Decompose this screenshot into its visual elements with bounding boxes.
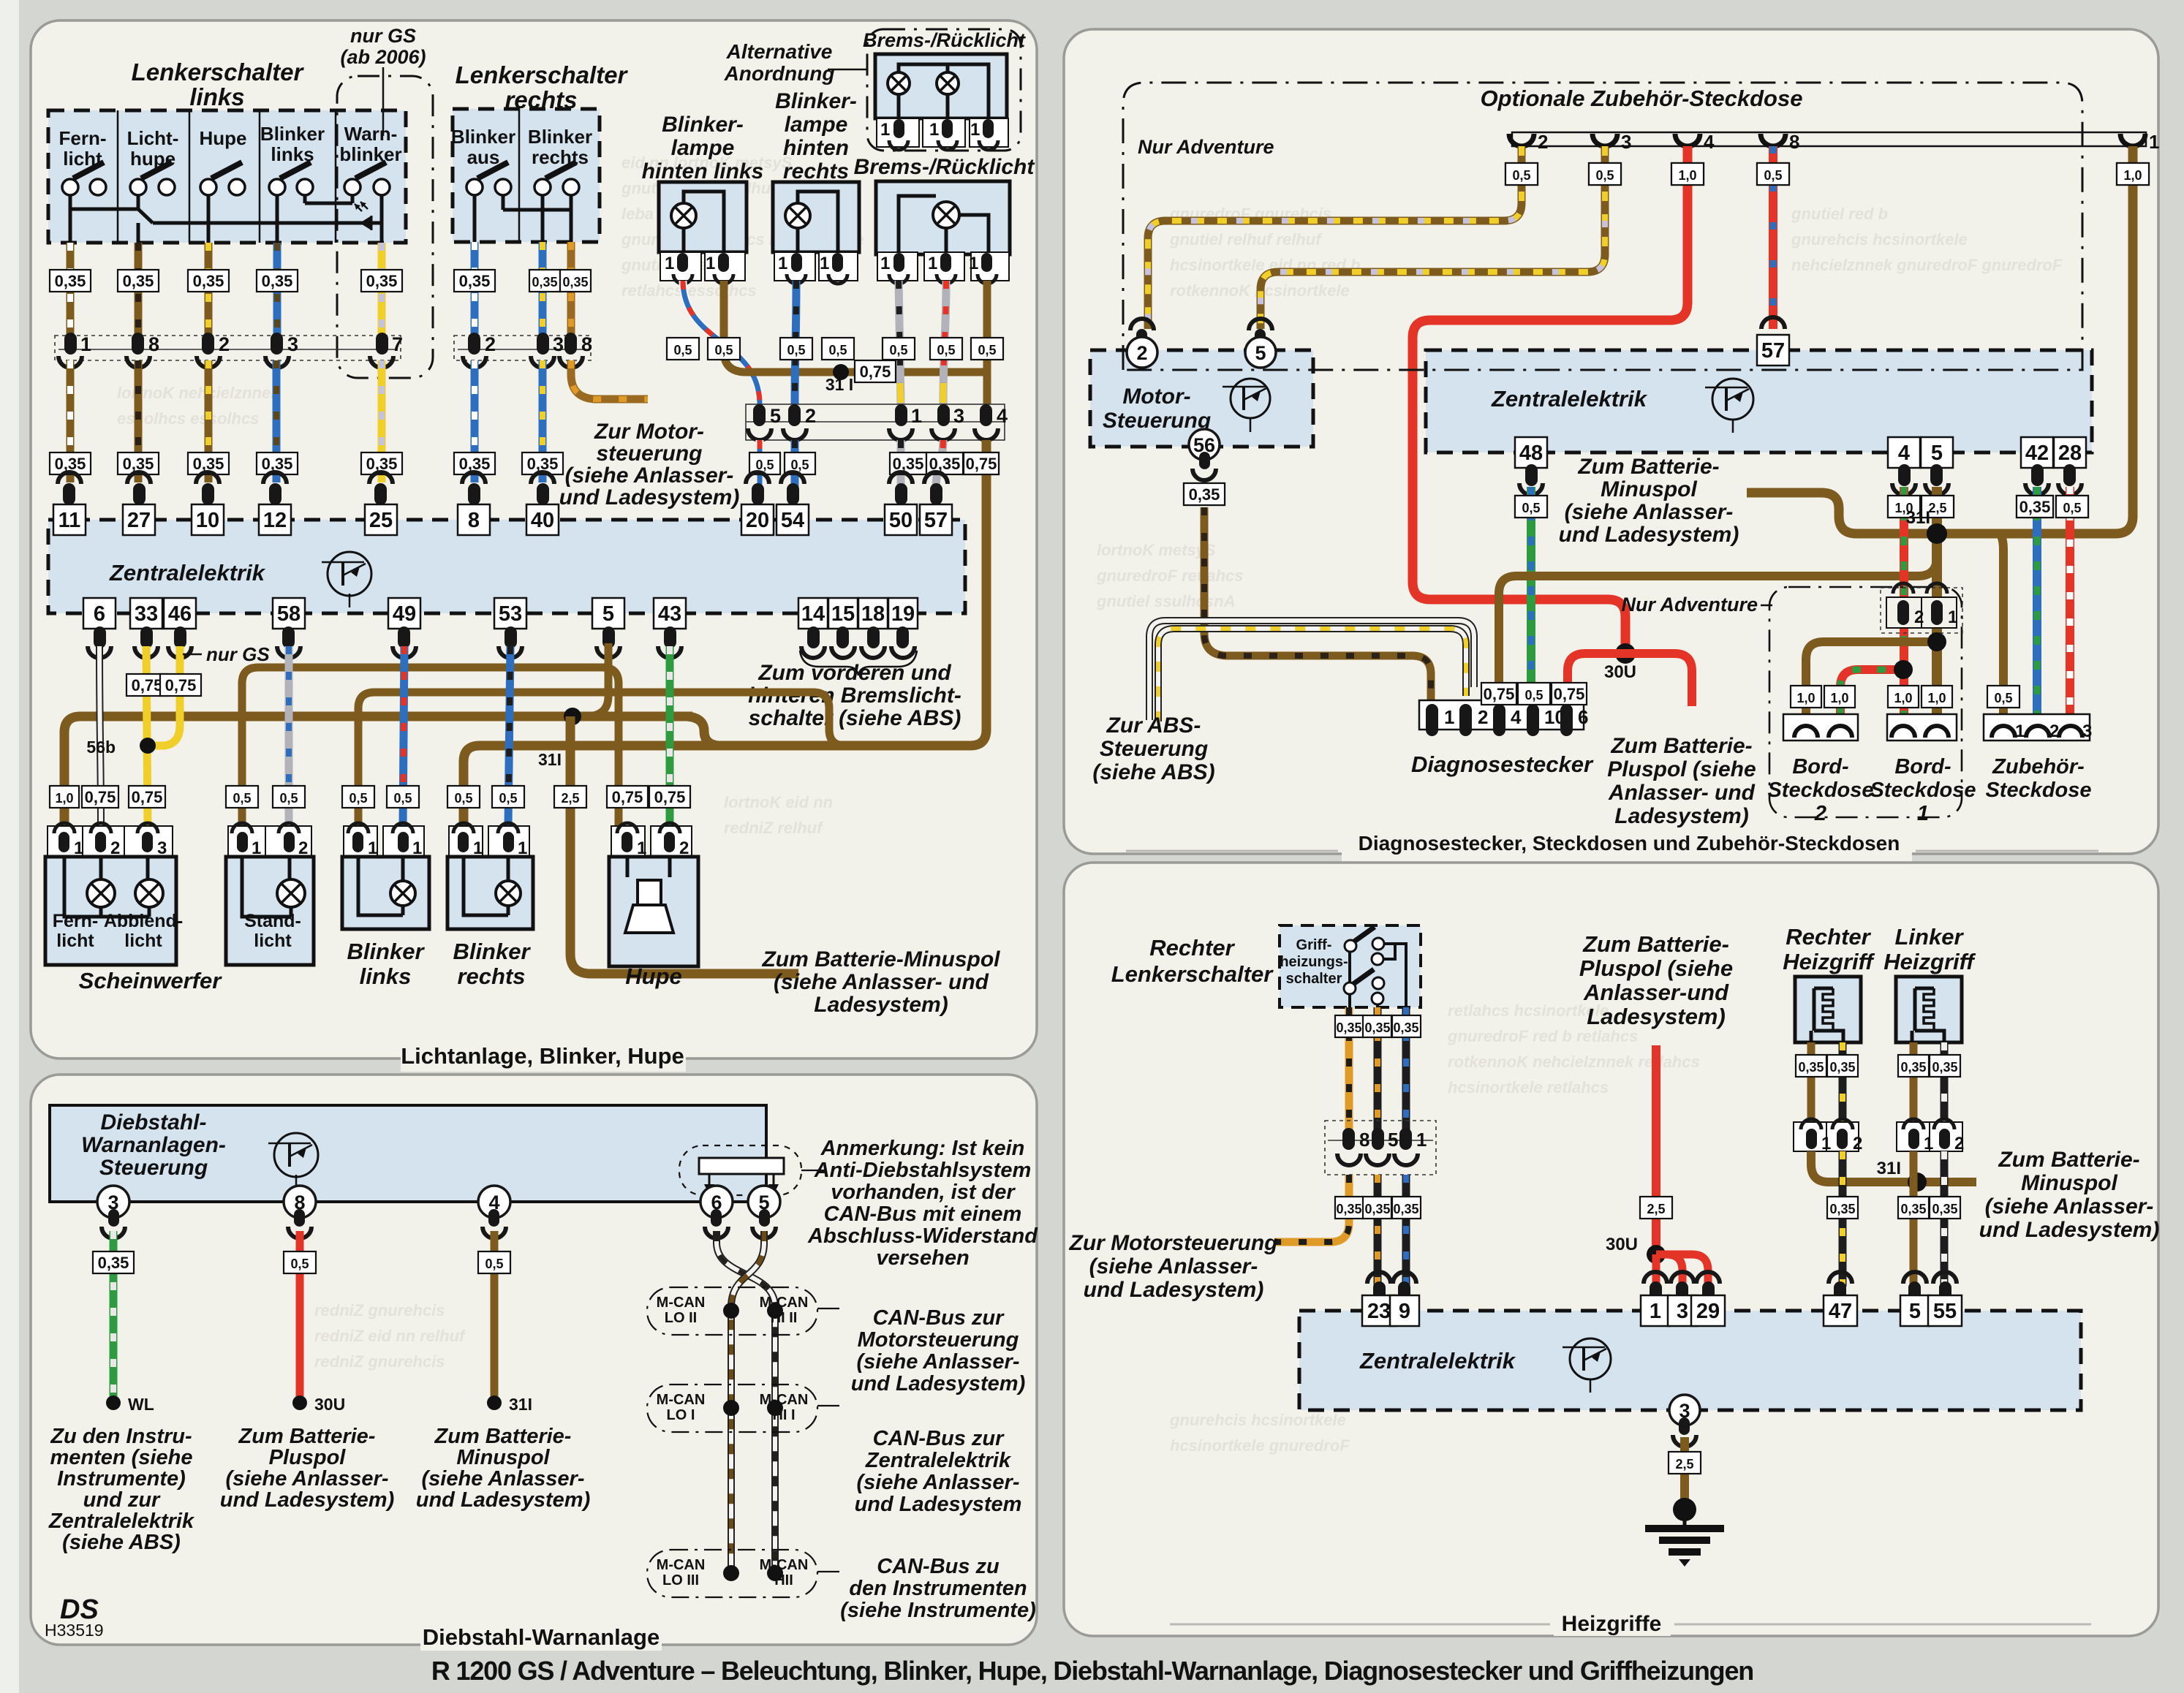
svg-text:Heizgriff: Heizgriff: [1783, 949, 1875, 974]
svg-text:53: 53: [499, 602, 522, 626]
svg-text:3: 3: [1677, 1300, 1688, 1323]
svg-text:Anlasser-und: Anlasser-und: [1583, 980, 1729, 1005]
svg-text:(siehe Anlasser-: (siehe Anlasser-: [1985, 1194, 2154, 1219]
svg-text:0,5: 0,5: [889, 343, 907, 357]
svg-text:0,5: 0,5: [1994, 691, 2012, 705]
svg-text:1: 1: [2015, 721, 2025, 741]
svg-text:0,35: 0,35: [1393, 1020, 1418, 1035]
svg-text:gnurehcis hcsinortkele: gnurehcis hcsinortkele: [1791, 230, 1968, 249]
svg-text:Zum Batterie-: Zum Batterie-: [1577, 455, 1719, 479]
svg-text:50: 50: [889, 509, 912, 532]
svg-text:1,0: 1,0: [55, 791, 73, 806]
svg-text:1,0: 1,0: [2123, 168, 2142, 183]
svg-text:R 1200 GS / Adventure – Beleuc: R 1200 GS / Adventure – Beleuchtung, Bli…: [431, 1656, 1753, 1686]
svg-text:0,35: 0,35: [532, 275, 557, 289]
svg-text:lampe: lampe: [671, 136, 735, 160]
svg-text:Ladesystem): Ladesystem): [1587, 1004, 1726, 1029]
svg-text:und Ladesystem: und Ladesystem: [855, 1493, 1022, 1516]
svg-text:LO I: LO I: [667, 1407, 695, 1423]
svg-text:0,5: 0,5: [2063, 501, 2081, 515]
svg-text:lampe: lampe: [785, 113, 848, 137]
svg-text:0,75: 0,75: [612, 788, 643, 806]
svg-text:Fern-: Fern-: [59, 127, 107, 149]
svg-text:31I: 31I: [538, 750, 562, 769]
svg-text:und Ladesystem): und Ladesystem): [220, 1488, 395, 1512]
svg-text:Zentralelektrik: Zentralelektrik: [109, 560, 266, 586]
svg-text:Optionale Zubehör-Steckdose: Optionale Zubehör-Steckdose: [1481, 86, 1803, 111]
svg-text:0,5: 0,5: [279, 791, 298, 806]
svg-text:Zum Batterie-Minuspol: Zum Batterie-Minuspol: [761, 947, 1000, 972]
svg-text:0,5: 0,5: [233, 791, 251, 806]
svg-text:2,5: 2,5: [1928, 501, 1946, 515]
svg-text:42: 42: [2025, 442, 2049, 465]
svg-text:(siehe Anlasser-: (siehe Anlasser-: [1565, 500, 1734, 524]
svg-text:12: 12: [263, 509, 287, 532]
svg-text:Heizgriffe: Heizgriffe: [1562, 1612, 1662, 1636]
svg-text:H33519: H33519: [45, 1621, 104, 1640]
svg-text:lortnoK eid nn: lortnoK eid nn: [724, 793, 833, 811]
svg-text:Anlasser- und: Anlasser- und: [1608, 781, 1756, 805]
svg-text:Motorsteuerung: Motorsteuerung: [858, 1328, 1019, 1352]
svg-text:Ladesystem): Ladesystem): [1614, 804, 1748, 828]
svg-text:30U: 30U: [1606, 1235, 1638, 1254]
svg-text:0,75: 0,75: [1484, 685, 1515, 703]
svg-text:menten (siehe: menten (siehe: [50, 1446, 193, 1469]
svg-text:Blinker: Blinker: [451, 126, 515, 148]
svg-text:5: 5: [1909, 1300, 1921, 1323]
svg-text:hcsinortkele retlahcs: hcsinortkele retlahcs: [1448, 1078, 1609, 1097]
svg-text:1: 1: [969, 254, 978, 273]
svg-text:9: 9: [1399, 1300, 1410, 1323]
svg-text:0,5: 0,5: [787, 343, 805, 357]
svg-text:0,35: 0,35: [1189, 485, 1220, 504]
svg-text:0,75: 0,75: [165, 676, 197, 694]
svg-text:Motor-: Motor-: [1122, 385, 1190, 409]
svg-text:M-CAN: M-CAN: [657, 1392, 706, 1408]
svg-text:2,5: 2,5: [1647, 1202, 1665, 1216]
svg-text:schalter: schalter: [1286, 971, 1342, 987]
svg-text:Instrumente): Instrumente): [57, 1467, 186, 1491]
svg-text:0,35: 0,35: [2019, 498, 2051, 516]
svg-text:WL: WL: [128, 1395, 154, 1414]
svg-text:Brems-/Rücklicht: Brems-/Rücklicht: [854, 155, 1036, 179]
svg-text:vorhanden, ist der: vorhanden, ist der: [831, 1181, 1016, 1204]
svg-text:14: 14: [801, 602, 825, 626]
svg-text:0,5: 0,5: [1595, 168, 1614, 183]
svg-text:M-CAN: M-CAN: [657, 1557, 706, 1573]
svg-text:0,5: 0,5: [1512, 168, 1530, 183]
svg-text:licht: licht: [254, 931, 292, 951]
svg-text:und Ladesystem): und Ladesystem): [1084, 1278, 1264, 1302]
svg-text:rotkennoK nehcielznnek retlahc: rotkennoK nehcielznnek retlahcs: [1448, 1053, 1700, 1071]
svg-text:Scheinwerfer: Scheinwerfer: [79, 968, 223, 993]
svg-text:Bord-: Bord-: [1792, 755, 1848, 779]
svg-text:Heizgriff: Heizgriff: [1883, 949, 1976, 974]
svg-text:Warnanlagen-: Warnanlagen-: [81, 1133, 226, 1157]
svg-text:2: 2: [1814, 802, 1826, 825]
svg-text:0,35: 0,35: [1900, 1060, 1926, 1075]
svg-text:11: 11: [58, 509, 81, 532]
svg-text:40: 40: [531, 509, 554, 532]
svg-text:(siehe Anlasser- und: (siehe Anlasser- und: [774, 970, 989, 994]
svg-text:Alternative: Alternative: [726, 40, 833, 63]
svg-text:CAN-Bus mit einem: CAN-Bus mit einem: [824, 1202, 1022, 1226]
svg-text:Steckdose: Steckdose: [1985, 779, 2091, 802]
svg-text:licht: licht: [124, 931, 162, 951]
svg-text:Nur Adventure: Nur Adventure: [1138, 136, 1274, 158]
svg-text:23: 23: [1367, 1300, 1391, 1323]
svg-text:rechts: rechts: [505, 86, 577, 113]
svg-text:2: 2: [1914, 607, 1924, 627]
svg-text:M-CAN: M-CAN: [760, 1295, 809, 1311]
svg-text:Zu den Instru-: Zu den Instru-: [50, 1425, 192, 1448]
svg-text:Zubehör-: Zubehör-: [1992, 755, 2085, 779]
svg-text:M-CAN: M-CAN: [760, 1557, 809, 1573]
svg-text:1,0: 1,0: [1796, 691, 1815, 705]
svg-text:Zentralelektrik: Zentralelektrik: [48, 1510, 195, 1533]
svg-text:20: 20: [746, 509, 769, 532]
svg-text:Minuspol: Minuspol: [1601, 477, 1697, 501]
svg-text:hcsinortkele gnuredroF: hcsinortkele gnuredroF: [1170, 1436, 1350, 1455]
svg-text:Zentralelektrik: Zentralelektrik: [865, 1449, 1012, 1472]
svg-text:(siehe Anlasser-: (siehe Anlasser-: [565, 463, 734, 488]
svg-text:1: 1: [911, 405, 922, 427]
svg-text:0,75: 0,75: [860, 363, 891, 381]
svg-text:Brems-/Rücklicht: Brems-/Rücklicht: [863, 29, 1026, 51]
svg-text:Blinker-: Blinker-: [775, 89, 857, 113]
svg-text:0,35: 0,35: [1932, 1202, 1957, 1216]
svg-text:(siehe Instrumente): (siehe Instrumente): [840, 1599, 1036, 1622]
svg-text:gnuredroF retlahcs: gnuredroF retlahcs: [1096, 567, 1243, 585]
svg-text:0,35: 0,35: [1932, 1060, 1957, 1075]
svg-text:48: 48: [1519, 442, 1543, 465]
svg-text:29: 29: [1696, 1300, 1720, 1323]
svg-text:blinker: blinker: [339, 143, 401, 165]
svg-text:1: 1: [1948, 607, 1957, 627]
svg-text:27: 27: [127, 509, 151, 532]
svg-text:gnurehcis hcsinortkele: gnurehcis hcsinortkele: [1169, 1411, 1346, 1429]
svg-text:0,5: 0,5: [673, 343, 692, 357]
svg-text:und Ladesystem): und Ladesystem): [416, 1488, 591, 1512]
svg-text:0,35: 0,35: [1393, 1202, 1418, 1216]
svg-text:redniZ eid nn relhuf: redniZ eid nn relhuf: [314, 1327, 466, 1345]
svg-text:1: 1: [665, 254, 674, 273]
svg-text:8: 8: [1359, 1129, 1369, 1151]
svg-text:Diebstahl-: Diebstahl-: [100, 1110, 206, 1135]
svg-text:schalter (siehe ABS): schalter (siehe ABS): [749, 706, 961, 730]
svg-text:(siehe ABS): (siehe ABS): [1092, 760, 1214, 784]
svg-text:Zur Motor-: Zur Motor-: [594, 420, 704, 444]
svg-text:Zum vorderen und: Zum vorderen und: [757, 661, 951, 685]
svg-text:57: 57: [924, 509, 948, 532]
svg-text:6: 6: [94, 602, 105, 626]
svg-text:0,35: 0,35: [1364, 1202, 1390, 1216]
svg-text:Abblend-: Abblend-: [104, 911, 183, 931]
svg-text:7: 7: [392, 333, 403, 355]
svg-text:redniZ relhuf: redniZ relhuf: [724, 819, 824, 837]
svg-text:1: 1: [80, 333, 91, 355]
svg-text:M-CAN: M-CAN: [657, 1295, 706, 1311]
svg-text:5: 5: [1255, 342, 1266, 364]
svg-text:2: 2: [805, 405, 816, 427]
svg-text:10: 10: [196, 509, 219, 532]
svg-text:rechts: rechts: [532, 146, 589, 168]
svg-text:0,35: 0,35: [562, 275, 588, 289]
svg-text:0,75: 0,75: [132, 676, 163, 694]
svg-text:0,75: 0,75: [1554, 685, 1585, 703]
svg-text:1: 1: [1650, 1300, 1661, 1323]
svg-text:2: 2: [219, 333, 230, 355]
svg-text:31I: 31I: [1877, 1159, 1901, 1178]
svg-text:gnutiel relhuf relhuf: gnutiel relhuf relhuf: [1169, 230, 1323, 249]
svg-text:Pluspol (siehe: Pluspol (siehe: [1607, 757, 1756, 781]
svg-text:1: 1: [1444, 706, 1454, 728]
svg-text:Blinker: Blinker: [260, 123, 325, 145]
svg-text:Ladesystem): Ladesystem): [814, 993, 948, 1017]
svg-text:0,5: 0,5: [1524, 688, 1543, 702]
svg-text:Hupe: Hupe: [625, 963, 682, 989]
svg-text:0,75: 0,75: [966, 455, 997, 473]
svg-text:8: 8: [468, 509, 480, 532]
svg-text:0,5: 0,5: [978, 343, 996, 357]
svg-text:Minuspol: Minuspol: [2021, 1171, 2117, 1195]
svg-text:58: 58: [277, 602, 301, 626]
svg-text:0,35: 0,35: [1829, 1202, 1855, 1216]
svg-text:1,0: 1,0: [1894, 691, 1912, 705]
svg-text:0,35: 0,35: [262, 272, 293, 290]
svg-text:1: 1: [706, 254, 715, 273]
svg-text:heizungs-: heizungs-: [1280, 954, 1348, 970]
svg-text:4: 4: [1898, 442, 1910, 465]
svg-text:2: 2: [2049, 721, 2059, 741]
svg-text:und Ladesystem): und Ladesystem): [851, 1372, 1026, 1395]
svg-text:rechts: rechts: [457, 963, 525, 989]
svg-text:LO III: LO III: [662, 1572, 699, 1588]
svg-text:0,5: 0,5: [454, 791, 472, 806]
svg-text:nehcielznnek gnuredroF gnuredr: nehcielznnek gnuredroF gnuredroF: [1791, 256, 2063, 274]
svg-text:Zentralelektrik: Zentralelektrik: [1359, 1348, 1516, 1374]
svg-text:54: 54: [781, 509, 804, 532]
svg-text:2: 2: [1538, 131, 1548, 153]
svg-text:(siehe Anlasser-: (siehe Anlasser-: [857, 1350, 1020, 1374]
svg-text:hinten links: hinten links: [642, 159, 764, 183]
svg-text:1: 1: [2149, 131, 2159, 153]
svg-text:8: 8: [148, 333, 159, 355]
svg-text:Blinker: Blinker: [528, 126, 592, 148]
svg-text:0,35: 0,35: [123, 272, 154, 290]
svg-text:19: 19: [891, 602, 915, 626]
svg-text:nur GS: nur GS: [350, 25, 416, 47]
svg-text:0,5: 0,5: [1522, 501, 1540, 515]
svg-text:30U: 30U: [1604, 662, 1636, 682]
svg-text:Abschluss-Widerstand: Abschluss-Widerstand: [807, 1224, 1038, 1248]
svg-text:25: 25: [369, 509, 393, 532]
svg-text:Blinker-: Blinker-: [662, 113, 744, 137]
svg-text:Zum Batterie-: Zum Batterie-: [1610, 734, 1752, 758]
svg-text:8: 8: [581, 333, 592, 355]
svg-text:rechts: rechts: [783, 159, 849, 183]
svg-text:hinten: hinten: [783, 136, 849, 160]
svg-text:gnutiel red b: gnutiel red b: [1791, 205, 1888, 223]
svg-text:redniZ gnurehcis: redniZ gnurehcis: [314, 1301, 445, 1319]
svg-text:2: 2: [1478, 706, 1488, 728]
svg-text:47: 47: [1829, 1300, 1852, 1323]
svg-text:gnuredroF red b retlahcs: gnuredroF red b retlahcs: [1447, 1027, 1638, 1045]
svg-text:1: 1: [1821, 1134, 1831, 1154]
svg-text:links: links: [189, 83, 244, 110]
svg-text:2: 2: [1136, 342, 1147, 364]
svg-text:und Ladesystem): und Ladesystem): [1979, 1218, 2160, 1242]
svg-text:55: 55: [1933, 1300, 1957, 1323]
svg-text:1: 1: [1416, 1129, 1427, 1151]
svg-text:4: 4: [1511, 706, 1522, 728]
svg-text:5: 5: [770, 405, 781, 427]
svg-text:steuerung: steuerung: [596, 442, 702, 466]
svg-text:28: 28: [2058, 442, 2082, 465]
svg-text:0,75: 0,75: [654, 788, 686, 806]
svg-text:2: 2: [1853, 1134, 1862, 1154]
svg-text:Hupe: Hupe: [200, 127, 247, 149]
svg-text:0,35: 0,35: [1336, 1020, 1361, 1035]
svg-text:Fern-: Fern-: [53, 911, 99, 931]
svg-text:lortnoK metsyS: lortnoK metsyS: [1097, 541, 1216, 559]
svg-text:0,75: 0,75: [132, 788, 163, 806]
svg-text:CAN-Bus zur: CAN-Bus zur: [873, 1306, 1005, 1330]
svg-text:0,35: 0,35: [459, 272, 491, 290]
svg-text:gnutiel ssulhcsnA: gnutiel ssulhcsnA: [1096, 592, 1235, 610]
svg-text:15: 15: [831, 602, 855, 626]
svg-text:2: 2: [485, 333, 496, 355]
svg-text:CAN-Bus zur: CAN-Bus zur: [873, 1427, 1005, 1450]
svg-text:Lenkerschalter: Lenkerschalter: [1111, 961, 1274, 987]
svg-text:Steckdose: Steckdose: [1767, 779, 1873, 802]
svg-text:Rechter: Rechter: [1149, 935, 1235, 961]
svg-text:nur GS: nur GS: [206, 643, 270, 665]
svg-text:Rechter: Rechter: [1786, 924, 1871, 950]
svg-text:0,35: 0,35: [366, 272, 398, 290]
svg-text:1: 1: [820, 254, 829, 273]
svg-text:Lichtanlage, Blinker, Hupe: Lichtanlage, Blinker, Hupe: [401, 1043, 684, 1069]
svg-text:Warn-: Warn-: [344, 123, 398, 145]
svg-text:Blinker: Blinker: [453, 939, 531, 964]
svg-text:Lenkerschalter: Lenkerschalter: [132, 58, 305, 86]
svg-text:1: 1: [880, 254, 890, 273]
svg-text:Steuerung: Steuerung: [99, 1156, 208, 1180]
svg-text:0,5: 0,5: [937, 343, 955, 357]
svg-text:1: 1: [880, 120, 890, 140]
svg-text:0,35: 0,35: [1336, 1202, 1361, 1216]
svg-text:Steckdose: Steckdose: [1870, 779, 1976, 802]
svg-text:redniZ gnurehcis: redniZ gnurehcis: [314, 1352, 445, 1371]
svg-text:0,35: 0,35: [1798, 1060, 1824, 1075]
svg-text:0,35: 0,35: [193, 272, 224, 290]
svg-text:1: 1: [1924, 1134, 1933, 1154]
svg-text:Diebstahl-Warnanlage: Diebstahl-Warnanlage: [423, 1624, 660, 1650]
svg-text:licht: licht: [56, 931, 94, 951]
svg-text:0,5: 0,5: [828, 343, 847, 357]
svg-text:1: 1: [929, 120, 939, 140]
svg-text:Zentralelektrik: Zentralelektrik: [1491, 386, 1648, 412]
svg-text:Lenkerschalter: Lenkerschalter: [456, 61, 629, 88]
svg-text:den Instrumenten: den Instrumenten: [849, 1577, 1027, 1600]
svg-text:18: 18: [861, 602, 885, 626]
svg-text:Steuerung: Steuerung: [1100, 737, 1208, 761]
svg-text:Zur ABS-: Zur ABS-: [1106, 713, 1201, 738]
svg-text:0,35: 0,35: [1829, 1060, 1855, 1075]
svg-text:Diagnosestecker: Diagnosestecker: [1411, 751, 1594, 777]
svg-text:(siehe Anlasser-: (siehe Anlasser-: [422, 1467, 585, 1491]
svg-text:Diagnosestecker, Steckdosen un: Diagnosestecker, Steckdosen und Zubehör-…: [1359, 832, 1900, 855]
svg-text:0,75: 0,75: [85, 788, 116, 806]
svg-text:1,0: 1,0: [1830, 691, 1848, 705]
svg-text:Pluspol (siehe: Pluspol (siehe: [1579, 955, 1733, 981]
svg-text:LO II: LO II: [665, 1310, 697, 1326]
svg-text:0,35: 0,35: [893, 455, 924, 473]
svg-text:5: 5: [602, 602, 614, 626]
svg-text:0,5: 0,5: [485, 1257, 503, 1271]
svg-text:3: 3: [287, 333, 298, 355]
svg-text:31 I: 31 I: [825, 375, 853, 394]
svg-text:3: 3: [2082, 721, 2092, 741]
svg-text:Minuspol: Minuspol: [456, 1446, 550, 1469]
svg-text:(siehe Anlasser-: (siehe Anlasser-: [857, 1471, 1020, 1494]
svg-text:0,5: 0,5: [349, 791, 367, 806]
svg-text:8: 8: [1789, 131, 1799, 153]
svg-text:0,5: 0,5: [790, 458, 809, 472]
svg-text:0,35: 0,35: [55, 272, 86, 290]
svg-text:Blinker: Blinker: [347, 939, 425, 964]
svg-text:(ab 2006): (ab 2006): [340, 46, 426, 68]
svg-text:1,0: 1,0: [1927, 691, 1946, 705]
svg-text:3: 3: [953, 405, 964, 427]
svg-text:aus: aus: [467, 146, 500, 168]
svg-text:33: 33: [135, 602, 158, 626]
svg-text:und Ladesystem): und Ladesystem): [559, 485, 740, 510]
svg-text:0,35: 0,35: [1364, 1020, 1390, 1035]
svg-text:4: 4: [1704, 131, 1715, 153]
svg-text:30U: 30U: [314, 1395, 345, 1414]
svg-text:0,5: 0,5: [499, 791, 517, 806]
svg-text:31I: 31I: [1906, 508, 1930, 528]
svg-text:3: 3: [553, 333, 564, 355]
svg-text:(siehe Anlasser-: (siehe Anlasser-: [1089, 1254, 1258, 1279]
svg-text:und Ladesystem): und Ladesystem): [1559, 523, 1739, 547]
svg-text:links: links: [360, 963, 412, 989]
svg-text:Griff-: Griff-: [1296, 937, 1332, 953]
svg-text:Stand-: Stand-: [244, 911, 301, 931]
svg-text:46: 46: [168, 602, 192, 626]
svg-text:43: 43: [658, 602, 681, 626]
svg-text:1,0: 1,0: [1678, 168, 1696, 183]
svg-text:0,5: 0,5: [755, 458, 774, 472]
svg-text:versehen: versehen: [876, 1246, 969, 1270]
svg-text:CAN-Bus zu: CAN-Bus zu: [877, 1555, 1000, 1578]
svg-text:2: 2: [1954, 1134, 1964, 1154]
svg-text:(siehe ABS): (siehe ABS): [62, 1531, 181, 1554]
svg-text:0,5: 0,5: [1764, 168, 1782, 183]
svg-text:Steuerung: Steuerung: [1103, 409, 1211, 433]
svg-text:0,35: 0,35: [98, 1254, 129, 1272]
svg-text:(siehe Anlasser-: (siehe Anlasser-: [226, 1467, 389, 1491]
svg-text:56b: 56b: [86, 738, 116, 757]
svg-text:Zur Motorsteuerung: Zur Motorsteuerung: [1069, 1231, 1278, 1255]
svg-text:2,5: 2,5: [561, 791, 579, 806]
svg-text:Bord-: Bord-: [1894, 755, 1951, 779]
svg-text:Anti-Diebstahlsystem: Anti-Diebstahlsystem: [814, 1159, 1032, 1182]
svg-text:Pluspol: Pluspol: [269, 1446, 347, 1469]
svg-text:M-CAN: M-CAN: [760, 1392, 809, 1408]
svg-text:5: 5: [1931, 442, 1943, 465]
